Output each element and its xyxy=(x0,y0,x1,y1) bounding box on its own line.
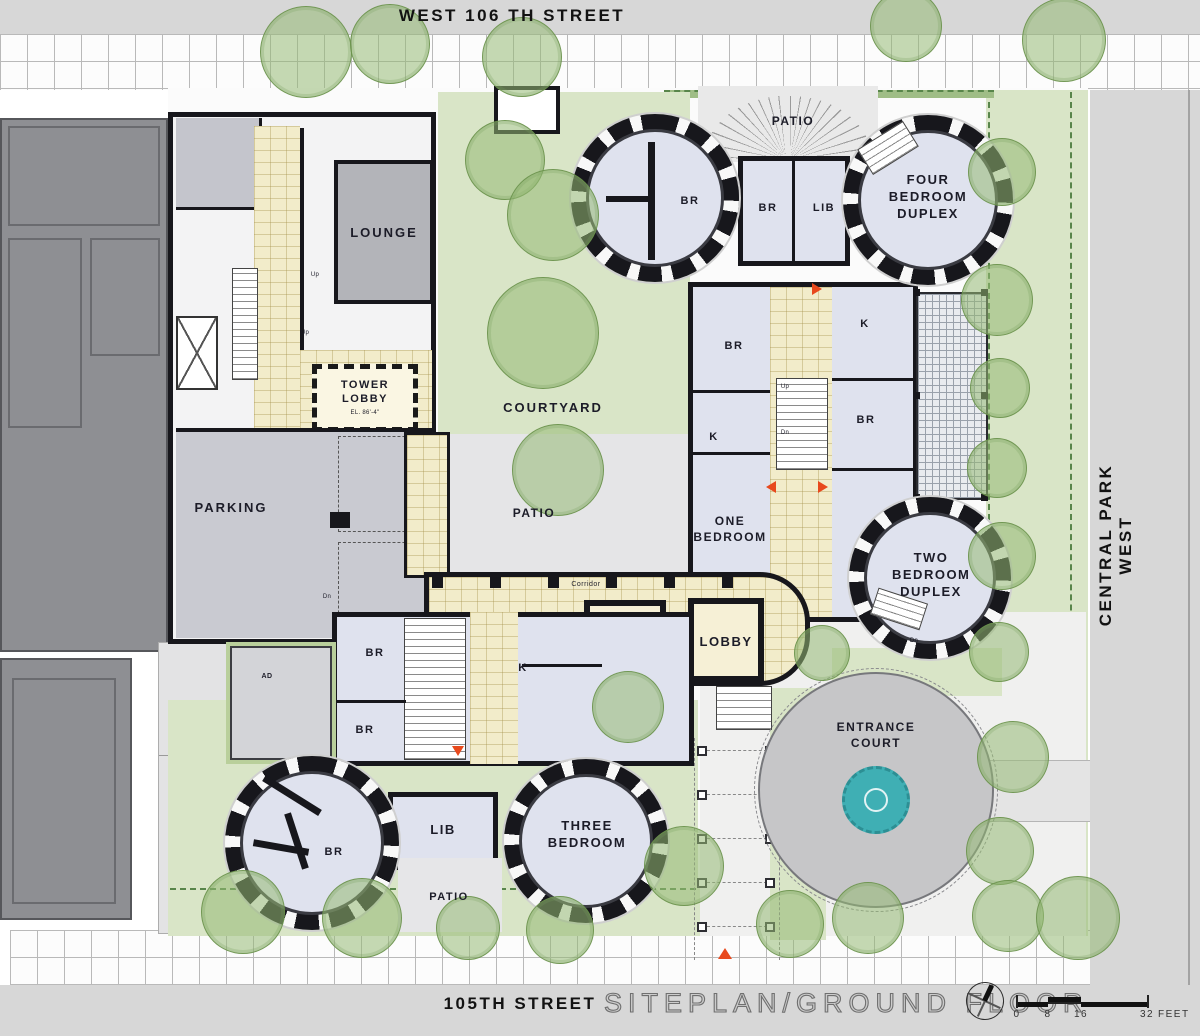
four-bedroom-duplex-label: FOUR BEDROOM DUPLEX xyxy=(873,172,983,223)
two-bedroom-duplex-label: TWO BEDROOM DUPLEX xyxy=(892,550,970,601)
wall xyxy=(522,664,602,667)
courtyard-label: COURTYARD xyxy=(493,400,613,417)
lobby-entry-steps xyxy=(716,686,772,730)
corridor-south-spine xyxy=(470,612,518,764)
tree xyxy=(832,882,904,954)
br-label: BR xyxy=(718,339,750,353)
wall xyxy=(693,390,770,393)
stair-west xyxy=(232,268,258,380)
wall xyxy=(606,196,650,202)
wall xyxy=(792,160,795,262)
corridor-west-vertical xyxy=(254,126,300,440)
entry-marker xyxy=(766,481,776,493)
lib-label: LIB xyxy=(412,822,474,839)
pergola-column xyxy=(697,746,707,756)
stair-down-label: Dn xyxy=(318,594,336,602)
fountain-center xyxy=(864,788,888,812)
corridor-spine-south xyxy=(404,432,450,578)
stair-down-label: Dn xyxy=(905,638,923,646)
patio-south-label: PATIO xyxy=(420,890,478,904)
parking-column xyxy=(330,512,350,528)
pergola-beam xyxy=(707,838,767,839)
kitchen-label: K xyxy=(514,661,532,675)
street-south-label: 105TH STREET xyxy=(430,994,610,1014)
sidewalk-north xyxy=(0,34,1200,90)
kitchen-label: K xyxy=(705,430,723,444)
tree xyxy=(794,625,850,681)
scale-tick-label: 0 xyxy=(1012,1008,1022,1021)
tree xyxy=(487,277,599,389)
neighbor-building-north xyxy=(0,118,168,652)
br-label: BR xyxy=(752,201,784,215)
wall xyxy=(693,452,770,455)
scale-bar-tick xyxy=(1147,995,1149,1008)
scale-bar-segment xyxy=(1081,1002,1148,1007)
tree xyxy=(977,721,1049,793)
scale-unit-label: FEET xyxy=(1158,1008,1192,1021)
wall xyxy=(832,378,913,381)
wall xyxy=(336,700,406,703)
neighbor-roof-line xyxy=(8,126,160,226)
lounge-label: LOUNGE xyxy=(344,225,424,242)
scale-bar-tick xyxy=(1016,995,1018,1008)
tree xyxy=(961,264,1033,336)
tower-lobby-label: TOWER LOBBY xyxy=(334,378,396,407)
tree xyxy=(260,6,352,98)
pergola-beam xyxy=(707,750,767,751)
wall xyxy=(832,468,913,471)
entry-marker xyxy=(818,481,828,493)
br-label: BR xyxy=(348,723,382,737)
tree xyxy=(756,890,824,958)
stair-south-core xyxy=(404,618,466,760)
br-label: BR xyxy=(673,194,707,208)
tree xyxy=(967,438,1027,498)
tree xyxy=(972,880,1044,952)
stair-up-label: Up xyxy=(306,272,324,280)
pergola-column xyxy=(697,790,707,800)
tree xyxy=(512,424,604,516)
kitchen-label: K xyxy=(856,317,874,331)
lib-label: LIB xyxy=(806,201,842,215)
pergola-column xyxy=(697,922,707,932)
stair-east-core xyxy=(776,378,828,470)
west-building-room xyxy=(176,118,262,210)
tree xyxy=(966,817,1034,885)
br-label: BR xyxy=(849,413,883,427)
tree xyxy=(968,522,1036,590)
entry-marker xyxy=(452,746,464,756)
north-arrow-needle xyxy=(982,984,994,1002)
corridor-label: Corridor xyxy=(560,580,612,589)
three-bedroom-label: THREE BEDROOM xyxy=(541,818,633,852)
wall xyxy=(300,128,304,350)
patio-court-label: PATIO xyxy=(504,506,564,522)
neighbor-building-south xyxy=(0,658,132,920)
scale-bar-segment xyxy=(1048,997,1081,1002)
annex-label: AD xyxy=(256,672,278,681)
scale-tick-label: 8 xyxy=(1043,1008,1053,1021)
street-north-label: WEST 106 TH STREET xyxy=(372,6,652,26)
elevator-shaft xyxy=(176,316,218,390)
tree xyxy=(507,169,599,261)
entry-marker xyxy=(812,283,822,295)
one-bedroom-label: ONE BEDROOM xyxy=(690,514,770,545)
tree xyxy=(482,17,562,97)
tree xyxy=(322,878,402,958)
entry-marker xyxy=(718,948,732,959)
annex xyxy=(230,646,332,760)
neighbor-roof-line xyxy=(12,678,116,904)
tree xyxy=(1022,0,1106,82)
stair-up-label: Up xyxy=(296,330,314,338)
stair-up-label: Up xyxy=(776,384,794,392)
scale-bar-segment xyxy=(1016,1002,1048,1007)
tree xyxy=(526,896,594,964)
tower-lobby-elevation: EL. 86'-4" xyxy=(334,410,396,418)
patio-north-label: PATIO xyxy=(763,114,823,130)
tree xyxy=(970,358,1030,418)
trellis-post xyxy=(913,289,920,296)
neighbor-roof-line xyxy=(90,238,160,356)
neighbor-roof-line xyxy=(8,238,82,428)
tower-northwest xyxy=(571,114,739,282)
scale-tick-label: 32 xyxy=(1140,1008,1154,1021)
tree xyxy=(592,671,664,743)
br-label: BR xyxy=(318,845,350,859)
tree xyxy=(644,826,724,906)
scale-bar: 0 8 16 32 FEET xyxy=(1016,990,1196,1018)
br-label: BR xyxy=(358,646,392,660)
tree xyxy=(201,870,285,954)
tree xyxy=(969,622,1029,682)
tree xyxy=(1036,876,1120,960)
pergola-column xyxy=(765,878,775,888)
tree xyxy=(436,896,500,960)
trellis-post xyxy=(913,392,920,399)
stair-down-label: Dn xyxy=(776,430,794,438)
parking-label: PARKING xyxy=(186,500,276,517)
curb-east xyxy=(1188,90,1190,985)
siteplan-drawing: RAMP DOWN xyxy=(0,0,1200,1036)
scale-tick-label: 16 xyxy=(1074,1008,1088,1021)
street-east-label: CENTRAL PARK WEST xyxy=(1096,433,1120,657)
entrance-court-label: ENTRANCE COURT xyxy=(828,720,924,751)
lobby-label: LOBBY xyxy=(692,634,760,651)
